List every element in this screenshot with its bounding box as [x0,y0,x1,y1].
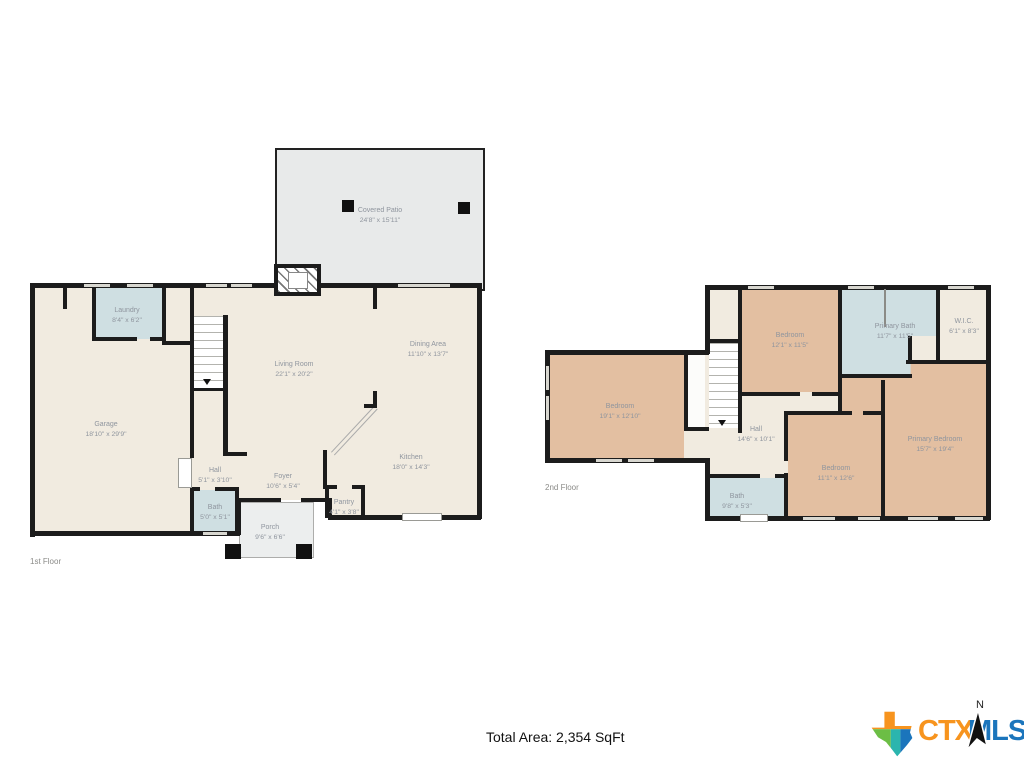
stairs-down-arrow-icon [718,420,726,426]
room-label-kitchen: Kitchen18'0" x 14'3" [392,453,429,473]
room-label-porch: Porch9'6" x 6'6" [255,523,285,543]
wall [906,360,990,364]
room-label-bedroom2: Bedroom19'1" x 12'10" [599,402,640,422]
wall [477,283,482,519]
room-label-garage: Garage18'10" x 29'9" [85,420,126,440]
room-label-hall-1f: Hall5'1" x 3'10" [198,466,232,486]
window [546,396,549,420]
window [948,286,974,289]
window [596,459,622,462]
wall [545,458,709,463]
wall [838,289,842,415]
room-label-pantry: Pantry4'1" x 3'8" [329,498,359,518]
window [231,284,252,287]
wall [194,388,224,391]
wall [775,474,788,478]
wall [705,458,710,520]
window [203,532,227,535]
wall [784,473,788,516]
wall [92,287,96,341]
wall [812,392,840,396]
floor1-label: 1st Floor [30,557,61,566]
wall [784,411,788,461]
post [342,200,354,212]
window [402,513,442,521]
closet-nook [688,354,705,427]
room-label-bedroom3: Bedroom11'1" x 12'6" [818,464,855,484]
fireplace-hearth [288,272,308,289]
room-label-living-room: Living Room22'1" x 20'2" [275,360,314,380]
wall [190,287,194,458]
room-label-covered-patio: Covered Patio24'8" x 15'11" [358,206,402,226]
room-label-foyer: Foyer10'6" x 5'4" [266,472,300,492]
stairs-first-floor [194,316,223,388]
window [546,366,549,390]
wall [323,450,327,489]
wall [237,498,281,502]
window [858,517,880,520]
window [803,517,835,520]
room-label-wic: W.I.C.6'1" x 8'3" [949,317,979,337]
room-label-bath-1f: Bath5'0" x 5'1" [200,503,230,523]
north-arrow-icon: N [952,696,998,758]
texas-icon [870,708,918,760]
post [225,544,241,559]
wall [705,285,710,354]
window [628,459,654,462]
window [748,286,774,289]
floor1-base [332,285,477,517]
fireplace [274,264,321,296]
room-label-hall-2f: Hall14'6" x 10'1" [737,425,774,445]
wall [223,315,228,455]
wall [373,283,377,309]
room-label-bath-2f: Bath9'8" x 5'3" [722,492,752,512]
north-letter: N [976,699,984,711]
room-label-dining-area: Dining Area11'10" x 13'7" [408,340,449,360]
total-area-text: Total Area: 2,354 SqFt [486,729,625,745]
floor2-label: 2nd Floor [545,483,579,492]
stairs-down-arrow-icon [203,379,211,385]
post [296,544,312,559]
room-label-primary-bedroom: Primary Bedroom15'7" x 19'4" [908,435,962,455]
post [458,202,470,214]
wall [784,411,852,415]
wall [30,283,35,537]
window [398,284,450,287]
wall [190,487,194,535]
wall [709,339,742,343]
window [84,284,110,287]
room-label-primary-bath: Primary Bath11'7" x 11'5" [875,322,915,342]
wall [936,289,940,364]
wall [63,287,67,309]
wall [684,354,688,431]
window [740,514,768,522]
wall [684,427,709,431]
wall [92,337,137,341]
window [848,286,874,289]
wall [842,374,912,378]
ctxmls-logo: CTX MLS N [870,702,1022,766]
window [908,517,938,520]
floor1-base [240,285,332,500]
window [206,284,227,287]
window [127,284,153,287]
room-label-bedroom1: Bedroom12'1" x 11'5" [772,331,809,351]
primary-bedroom-room [842,378,885,415]
room-label-laundry: Laundry8'4" x 6'2" [112,306,142,326]
floorplan-page: Covered Patio24'8" x 15'11" Laundry8'4" … [0,0,1024,768]
wall [705,474,760,478]
wall [235,487,239,535]
stairs-second-floor [709,343,738,428]
door-leaf [178,458,192,488]
wall [364,404,377,408]
wall [742,392,800,396]
wall [361,485,365,518]
wall [352,485,365,489]
wall [986,285,991,520]
wall [881,380,885,516]
wall [162,287,166,345]
wall [223,452,247,456]
wall [738,289,742,433]
window [955,517,983,520]
